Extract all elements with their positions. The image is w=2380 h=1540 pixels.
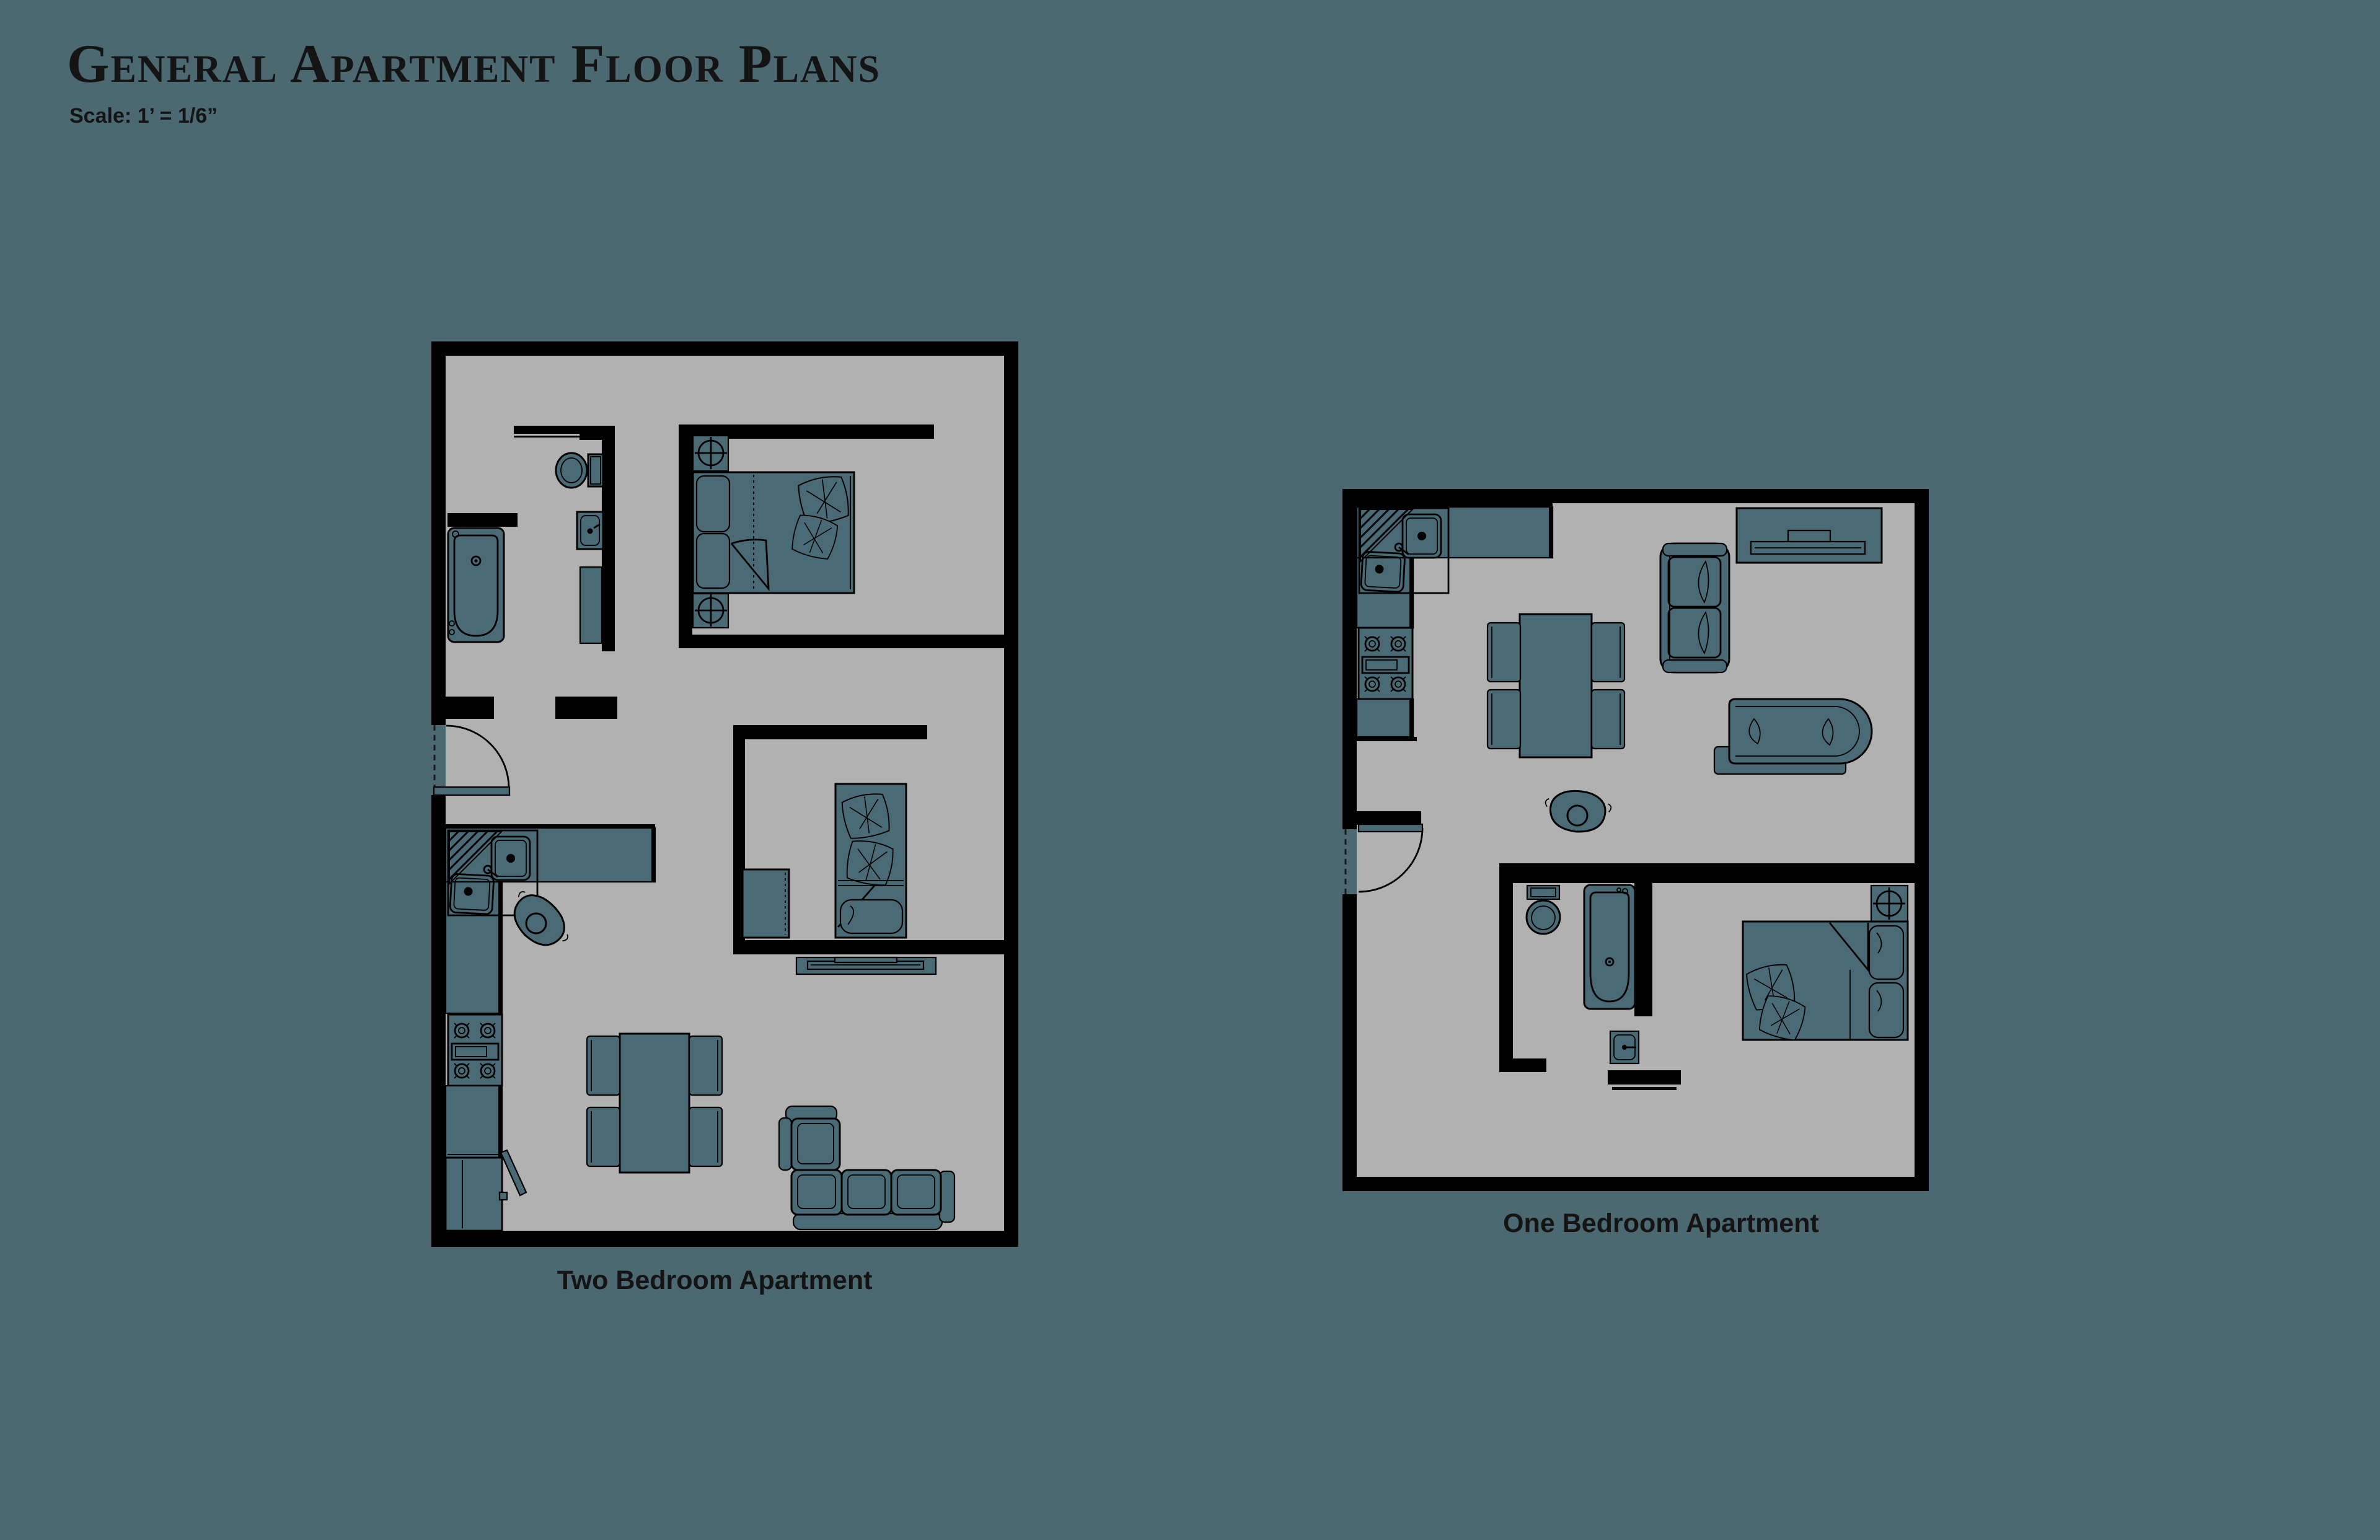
bathtub-icon <box>448 528 504 642</box>
chair-icon <box>1592 690 1624 749</box>
nightstand-lamp-icon <box>1871 886 1908 922</box>
double-bed-icon <box>693 472 854 593</box>
page-title: General Apartment Floor Plans <box>67 36 881 93</box>
door-leaf <box>434 787 509 795</box>
plan-label-one-bedroom: One Bedroom Apartment <box>1382 1208 1940 1239</box>
dining-table-icon <box>1520 614 1592 757</box>
tv-console-icon <box>796 957 936 974</box>
floor-plan-sheet: General Apartment Floor Plans Scale: 1’ … <box>0 0 2380 1540</box>
stove-icon <box>1359 628 1413 699</box>
bathroom-cabinet <box>580 567 602 643</box>
bathroom-sink-icon <box>577 512 603 549</box>
stove-icon <box>448 1014 502 1086</box>
dining-table-icon <box>620 1034 689 1173</box>
two-bedroom-plan <box>431 341 1018 1247</box>
chair-icon <box>1487 690 1520 749</box>
chair-icon <box>587 1107 620 1166</box>
chair-icon <box>689 1107 722 1166</box>
door-leaf <box>1359 824 1422 832</box>
nightstand-lamp-icon <box>693 436 728 471</box>
bathroom-sink-icon <box>1610 1031 1639 1063</box>
tv-console-icon <box>1737 508 1882 563</box>
toilet-icon <box>556 453 603 488</box>
chair-icon <box>587 1036 620 1095</box>
toilet-icon <box>1527 886 1560 934</box>
chair-icon <box>1487 623 1520 682</box>
dresser-icon <box>743 869 789 938</box>
bathtub-icon <box>1584 885 1635 1009</box>
one-bedroom-plan <box>1342 489 1929 1191</box>
chair-icon <box>689 1036 722 1095</box>
sofa-icon <box>1660 543 1729 672</box>
single-bed-icon <box>835 784 906 938</box>
floor-plan-drawing <box>0 0 2380 1540</box>
double-bed-icon <box>1743 922 1908 1042</box>
nightstand-lamp-icon <box>693 594 728 628</box>
scale-note: Scale: 1’ = 1/6” <box>69 104 218 128</box>
plan-label-two-bedroom: Two Bedroom Apartment <box>436 1265 994 1296</box>
chaise-lounge-icon <box>1714 699 1872 774</box>
chair-icon <box>1592 623 1624 682</box>
